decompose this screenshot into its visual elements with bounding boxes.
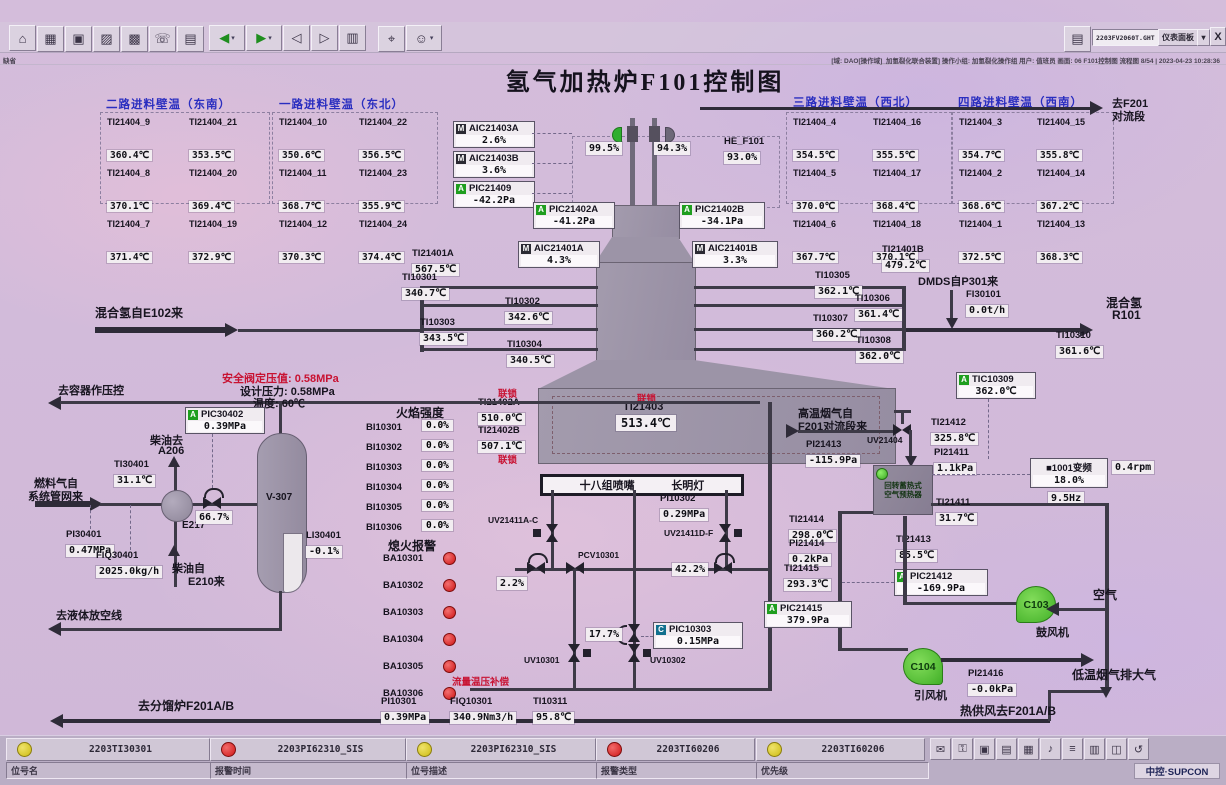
controller-AIC21401A[interactable]: MAIC21401A4.3% — [518, 241, 600, 268]
wall-value-TI21404_22[interactable]: 356.5℃ — [359, 150, 404, 161]
readout-TI10306: TI10306361.4℃ — [855, 293, 902, 322]
interlock-label: 联锁 — [498, 452, 517, 466]
controller-tag-AIC21401B: AIC21401B — [708, 243, 758, 254]
label-burners: 十八组喷嘴 — [580, 477, 635, 493]
fuelgas-control-valve[interactable] — [203, 497, 221, 509]
wall-temp-cell: TI21404_21353.5℃ — [185, 116, 267, 164]
v307-level-glass — [284, 534, 302, 592]
readout-TI10307: TI10307360.2℃ — [813, 313, 860, 342]
damper-b-body[interactable] — [649, 126, 660, 142]
flame-tag-BI10306: BI10306 — [366, 522, 402, 533]
burner-fuel-valve-a[interactable] — [527, 562, 545, 574]
wall-group-1-title: 一路进料壁温（东北） — [279, 96, 404, 112]
controller-PIC21402B[interactable]: APIC21402B-34.1Pa — [679, 202, 765, 229]
search-button[interactable]: ⌖ — [378, 26, 405, 52]
readout-value-TI10301[interactable]: 340.7℃ — [402, 288, 449, 300]
wall-tag-TI21404_16: TI21404_16 — [873, 117, 945, 127]
flame-value-BI10304[interactable]: 0.0% — [422, 480, 453, 491]
controller-AIC21403B[interactable]: MAIC21403B3.6% — [453, 151, 535, 178]
controller-AIC21401B[interactable]: MAIC21401B3.3% — [692, 241, 778, 268]
readout-LI30401: LI30401-0.1% — [306, 530, 342, 559]
mode-M-icon: M — [456, 154, 466, 164]
controller-tag-PIC21402A: PIC21402A — [549, 204, 598, 215]
flame-value-BI10305[interactable]: 0.0% — [422, 500, 453, 511]
flameout-alarm-indicator — [443, 579, 456, 592]
wall-value-TI21404_11[interactable]: 368.7℃ — [279, 201, 324, 212]
label-pcv10301: PCV10301 — [578, 550, 619, 560]
readout-TI21412: TI21412325.8℃ — [931, 417, 978, 446]
dropdown-icon: ▾ — [231, 34, 235, 42]
readout-value-LI30401[interactable]: -0.1% — [306, 546, 342, 558]
valve-actuator-icon — [528, 553, 548, 563]
home-button[interactable]: ⌂ — [9, 25, 36, 51]
wall-value-TI21404_5[interactable]: 370.0℃ — [793, 201, 838, 212]
wall-group-2-title: 二路进料壁温（东南） — [106, 96, 231, 112]
flameout-alarm-indicator — [443, 633, 456, 646]
alarm-field-2: 报警时间 — [210, 762, 410, 779]
wall-temp-cell: TI21404_2368.6℃ — [955, 167, 1033, 215]
instrument-panel-button[interactable]: 仪表面板 — [1158, 29, 1198, 46]
phone-button[interactable]: ☏ — [149, 26, 176, 52]
forward-button[interactable]: ▶▾ — [246, 25, 282, 51]
readout-value-TI10302[interactable]: 342.6℃ — [505, 312, 552, 324]
flameout-row: BA10303 — [383, 606, 473, 622]
readout-value-TI10304[interactable]: 340.5℃ — [507, 355, 554, 367]
forward-icon: ▶ — [256, 30, 266, 46]
readout-value-FIQ10301[interactable]: 340.9Nm3/h — [450, 712, 516, 724]
alarm-yellow-indicator — [417, 742, 432, 757]
grid-button[interactable]: ▩ — [121, 26, 148, 52]
label-c103: C103 — [1023, 599, 1048, 611]
book-icon: ▥ — [346, 30, 358, 46]
readout-FIQ10301: FIQ10301340.9Nm3/h — [450, 696, 516, 725]
readout-tag-TI10306: TI10306 — [855, 293, 902, 304]
readout-tag-TI10305: TI10305 — [815, 270, 862, 281]
wall-temp-cell: TI21404_3354.7℃ — [955, 116, 1033, 164]
flame-tag-BI10301: BI10301 — [366, 422, 402, 433]
monitor-icon: ▣ — [72, 31, 84, 47]
label-blower: 鼓风机 — [1036, 624, 1069, 640]
alarm-tag: 2203TI60206 — [622, 744, 754, 755]
controller-tag-PIC21412: PIC21412 — [910, 571, 952, 582]
controller-PIC21402A[interactable]: APIC21402A-41.2Pa — [533, 202, 615, 229]
readout-tag-TI10307: TI10307 — [813, 313, 860, 324]
readout-PI10301: PI103010.39MPa — [381, 696, 429, 725]
alarm-segment[interactable]: 2203TI60206 — [596, 738, 755, 761]
label-preheater-2: 空气预热器 — [884, 490, 922, 499]
flame-value-BI10306[interactable]: 0.0% — [422, 520, 453, 531]
wall-value-TI21404_14[interactable]: 367.2℃ — [1037, 201, 1082, 212]
phone-icon: ☏ — [154, 31, 170, 47]
burner-box: 十八组喷嘴 长明灯 — [540, 474, 744, 496]
flameout-tag-BA10301: BA10301 — [383, 553, 423, 564]
controller-value-PIC21415[interactable]: 379.9Pa — [767, 615, 849, 626]
alarm-field-5: 优先级 — [756, 762, 929, 779]
pcv10301-valve[interactable] — [566, 562, 584, 574]
wall-value-TI21404_17[interactable]: 368.4℃ — [873, 201, 918, 212]
flameout-row: BA10304 — [383, 633, 473, 649]
uv21411ac-valve[interactable] — [546, 524, 558, 542]
vfd-rpm[interactable]: 0.4rpm — [1112, 461, 1154, 474]
readout-TI10301: TI10301340.7℃ — [402, 272, 449, 301]
wall-value-TI21404_24[interactable]: 374.4℃ — [359, 252, 404, 263]
vfd-percent: 18.0% — [1033, 475, 1105, 486]
controller-PIC21409[interactable]: APIC21409-42.2Pa — [453, 181, 535, 208]
wall-value-TI21404_4[interactable]: 354.5℃ — [793, 150, 838, 161]
readout-TI10310: TI10310361.6℃ — [1056, 330, 1103, 359]
alarm-tag: 2203PI62310_SIS — [432, 744, 595, 755]
readout-value-PI21416[interactable]: -0.0kPa — [968, 684, 1016, 696]
furnace-transition — [612, 205, 680, 239]
wall-temp-cell: TI21404_17368.4℃ — [869, 167, 949, 215]
wall-tag-TI21404_4: TI21404_4 — [793, 117, 865, 127]
pilot-valve-output[interactable]: 17.7% — [586, 628, 622, 641]
pilot-control-valve[interactable] — [628, 624, 640, 642]
alarm-field-1: 位号名 — [6, 762, 214, 779]
close-button[interactable]: X — [1210, 27, 1226, 46]
wall-value-TI21404_23[interactable]: 355.9℃ — [359, 201, 404, 212]
wall-tag-TI21404_8: TI21404_8 — [107, 168, 181, 178]
readout-HE_F101: HE_F10193.0% — [724, 136, 764, 165]
wall-value-TI21404_13[interactable]: 368.3℃ — [1037, 252, 1082, 263]
wall-tag-TI21404_10: TI21404_10 — [279, 117, 351, 127]
readout-PI21411: PI214111.1kPa — [934, 447, 976, 476]
wall-value-TI21404_9[interactable]: 360.4℃ — [107, 150, 152, 161]
readout-tag-TI21411: TI21411 — [936, 497, 977, 508]
readout-tag-TI21414: TI21414 — [789, 514, 836, 525]
printer2-button[interactable]: ▤ — [996, 738, 1017, 760]
wall-value-TI21404_20[interactable]: 369.4℃ — [189, 201, 234, 212]
dropdown-icon: ▾ — [268, 34, 272, 42]
wall-value-TI21404_10[interactable]: 350.6℃ — [279, 150, 324, 161]
readout-value-TI10306[interactable]: 361.4℃ — [855, 309, 902, 321]
document-button[interactable]: ▤ — [177, 26, 204, 52]
alarm-segment[interactable]: 2203TI60206 — [756, 738, 925, 761]
readout-tag-TI10303: TI10303 — [420, 317, 467, 328]
wall-temp-cell: TI21404_11368.7℃ — [275, 167, 355, 215]
controller-tag-PIC30402: PIC30402 — [201, 409, 243, 420]
fuelgas-valve-output[interactable]: 66.7% — [196, 511, 232, 524]
wall-tag-TI21404_23: TI21404_23 — [359, 168, 431, 178]
alarm-bell-button[interactable]: ♪ — [1040, 738, 1061, 760]
wall-temp-table: TI21404_4354.5℃TI21404_16355.5℃TI21404_5… — [786, 112, 952, 204]
readout-tag-TI21402B: TI21402B — [478, 425, 525, 436]
wall-tag-TI21404_3: TI21404_3 — [959, 117, 1029, 127]
readout-tag-TI10311: TI10311 — [533, 696, 574, 707]
label-uv10301: UV10301 — [524, 655, 559, 665]
c104-fan[interactable]: C104 — [903, 648, 943, 685]
list-button[interactable]: ≡ — [1062, 738, 1083, 760]
label-low-flue: 低温烟气排大气 — [1072, 666, 1156, 683]
wall-tag-TI21404_12: TI21404_12 — [279, 219, 351, 229]
alarm-tag: 2203TI60206 — [782, 744, 924, 755]
vfd-1001[interactable]: ■1001变频 18.0% — [1030, 458, 1108, 488]
controller-PIC21412[interactable]: APIC21412-169.9Pa — [894, 569, 988, 596]
furnace-column — [596, 262, 696, 363]
controller-value-AIC21401A[interactable]: 4.3% — [521, 255, 597, 266]
wall-temp-cell: TI21404_10350.6℃ — [275, 116, 355, 164]
readout-value-TI21401B[interactable]: 479.2℃ — [882, 260, 929, 272]
wall-value-TI21404_21[interactable]: 353.5℃ — [189, 150, 234, 161]
readout-FI30101: FI301010.0t/h — [966, 289, 1008, 318]
readout-value-TI10307[interactable]: 360.2℃ — [813, 329, 860, 341]
alarm-red-indicator — [607, 742, 622, 757]
damper-b-output[interactable]: 94.3% — [654, 142, 690, 155]
page-next-button[interactable]: ▷ — [311, 25, 338, 51]
readout-value-TI10311[interactable]: 95.8℃ — [533, 712, 574, 724]
flame-tag-BI10303: BI10303 — [366, 462, 402, 473]
flameout-row: BA10302 — [383, 579, 473, 595]
controller-value-PIC10303[interactable]: 0.15MPa — [656, 636, 740, 647]
controller-value-PIC21402B[interactable]: -34.1Pa — [682, 216, 762, 227]
controller-value-TIC10309[interactable]: 362.0℃ — [959, 386, 1033, 397]
controller-PIC30402[interactable]: APIC304020.39MPa — [185, 407, 265, 434]
controller-AIC21403A[interactable]: MAIC21403A2.6% — [453, 121, 535, 148]
readout-FIQ30401: FIQ304012025.0kg/h — [96, 550, 162, 579]
wall-temp-cell: TI21404_9360.4℃ — [103, 116, 185, 164]
toolbar: ⌂▦▣▨▩☏▤ ◀▾▶▾◁▷▥ ⌖☺▾ ▤ 2203FV2060T.GHT 仪表… — [0, 22, 1226, 52]
readout-value-TI10308[interactable]: 362.0℃ — [856, 351, 903, 363]
wall-temp-table: TI21404_9360.4℃TI21404_21353.5℃TI21404_8… — [100, 112, 270, 204]
wall-value-TI21404_12[interactable]: 370.3℃ — [279, 252, 324, 263]
wall-temp-cell: TI21404_19372.9℃ — [185, 218, 267, 266]
wall-value-TI21404_1[interactable]: 372.5℃ — [959, 252, 1004, 263]
readout-value-FI30101[interactable]: 0.0t/h — [966, 305, 1008, 317]
wall-tag-TI21404_13: TI21404_13 — [1037, 219, 1107, 229]
flame-value-BI10303[interactable]: 0.0% — [422, 460, 453, 471]
controller-tag-AIC21403B: AIC21403B — [469, 153, 519, 164]
flameout-tag-BA10303: BA10303 — [383, 607, 423, 618]
lock-button[interactable]: ⚿ — [952, 738, 973, 760]
readout-value-TI30401[interactable]: 31.1℃ — [114, 475, 155, 487]
wall-tag-TI21404_19: TI21404_19 — [189, 219, 263, 229]
label-uv21411ac: UV21411A-C — [488, 515, 538, 525]
controller-PIC10303[interactable]: CPIC103030.15MPa — [653, 622, 743, 649]
controller-PIC21415[interactable]: APIC21415379.9Pa — [764, 601, 852, 628]
controller-tag-PIC21409: PIC21409 — [469, 183, 511, 194]
wall-tag-TI21404_6: TI21404_6 — [793, 219, 865, 229]
readout-TI21415: TI21415293.3℃ — [784, 563, 831, 592]
label-air: 空气 — [1093, 586, 1117, 603]
flame-row: BI103010.0% — [366, 420, 476, 436]
dcs-screen: ⌂▦▣▨▩☏▤ ◀▾▶▾◁▷▥ ⌖☺▾ ▤ 2203FV2060T.GHT 仪表… — [0, 0, 1226, 785]
alarm-segment[interactable]: 2203PI62310_SIS — [406, 738, 596, 761]
window-button[interactable]: ◫ — [1106, 738, 1127, 760]
mode-M-icon: M — [695, 244, 705, 254]
flameout-alarm-indicator — [443, 552, 456, 565]
monitor-button[interactable]: ▣ — [65, 26, 92, 52]
table-icon: ▦ — [44, 31, 56, 47]
flame-row: BI103060.0% — [366, 520, 476, 536]
uv10302-valve[interactable] — [628, 644, 640, 662]
alarm-yellow-indicator — [17, 742, 32, 757]
controller-tag-AIC21403A: AIC21403A — [469, 123, 519, 134]
label-to-vessel: 去容器作压控 — [58, 382, 124, 398]
calendar-button[interactable]: ▦ — [1018, 738, 1039, 760]
screen-button[interactable]: ▣ — [974, 738, 995, 760]
panel-dropdown-button[interactable]: ▾ — [1197, 29, 1210, 46]
wall-value-TI21404_6[interactable]: 367.7℃ — [793, 252, 838, 263]
readout-value-TI21402A[interactable]: 510.0℃ — [478, 413, 525, 425]
page-prev-button[interactable]: ◁ — [283, 25, 310, 51]
mouse-button[interactable]: ✉ — [930, 738, 951, 760]
mode-A-icon: A — [188, 410, 198, 420]
ti21403-value[interactable]: 513.4℃ — [616, 415, 676, 431]
controller-value-PIC21402A[interactable]: -41.2Pa — [536, 216, 612, 227]
document-combobox[interactable]: 2203FV2060T.GHT — [1092, 29, 1164, 46]
wall-value-TI21404_8[interactable]: 370.1℃ — [107, 201, 152, 212]
wall-temp-table: TI21404_10350.6℃TI21404_22356.5℃TI21404_… — [272, 112, 438, 204]
wall-tag-TI21404_1: TI21404_1 — [959, 219, 1029, 229]
mode-A-icon: A — [682, 205, 692, 215]
mode-A-icon: A — [536, 205, 546, 215]
vfd-name: ■1001变频 — [1046, 460, 1092, 474]
readout-value-TI10310[interactable]: 361.6℃ — [1056, 346, 1103, 358]
damper-a-output[interactable]: 99.5% — [586, 142, 622, 155]
flame-tag-BI10304: BI10304 — [366, 482, 402, 493]
flameout-tag-BA10305: BA10305 — [383, 661, 423, 672]
label-flow-comp: 流量温压补偿 — [452, 674, 509, 688]
alarm-red-indicator — [221, 742, 236, 757]
wall-temp-cell: TI21404_20369.4℃ — [185, 167, 267, 215]
flame-row: BI103040.0% — [366, 480, 476, 496]
search-icon: ⌖ — [388, 31, 395, 47]
wall-value-TI21404_19[interactable]: 372.9℃ — [189, 252, 234, 263]
uv21411df-valve[interactable] — [719, 524, 731, 542]
wall-temp-table: TI21404_3354.7℃TI21404_15355.8℃TI21404_2… — [952, 112, 1114, 204]
wall-value-TI21404_16[interactable]: 355.5℃ — [873, 150, 918, 161]
mode-A-icon: A — [959, 375, 969, 385]
flame-tag-BI10302: BI10302 — [366, 442, 402, 453]
readout-value-TI21411[interactable]: 31.7℃ — [936, 513, 977, 525]
readout-tag-TI21401A: TI21401A — [412, 248, 459, 259]
damper-a-body[interactable] — [627, 126, 638, 142]
flameout-tag-BA10304: BA10304 — [383, 634, 423, 645]
controller-tag-PIC21415: PIC21415 — [780, 603, 822, 614]
report-button[interactable]: ▥ — [1084, 738, 1105, 760]
wall-value-TI21404_15[interactable]: 355.8℃ — [1037, 150, 1082, 161]
controller-value-PIC21409[interactable]: -42.2Pa — [456, 195, 532, 206]
readout-value-HE_F101[interactable]: 93.0% — [724, 152, 760, 164]
flame-row: BI103050.0% — [366, 500, 476, 516]
grid-icon: ▩ — [128, 31, 140, 47]
readout-TI10308: TI10308362.0℃ — [856, 335, 903, 364]
burner-valve-a-output[interactable]: 2.2% — [497, 577, 527, 590]
wall-temp-cell: TI21404_13368.3℃ — [1033, 218, 1111, 266]
user-button[interactable]: ☺▾ — [406, 25, 442, 51]
label-uv10302: UV10302 — [650, 655, 685, 665]
readout-value-PI21413[interactable]: -115.9Pa — [806, 455, 860, 467]
readout-tag-PI21413: PI21413 — [806, 439, 860, 450]
trend-button[interactable]: ▨ — [93, 26, 120, 52]
pipe-to-f201 — [700, 107, 1092, 110]
wall-temp-cell: TI21404_8370.1℃ — [103, 167, 185, 215]
page-prev-icon: ◁ — [292, 30, 302, 46]
uv10301-valve[interactable] — [568, 644, 580, 662]
wall-tag-TI21404_20: TI21404_20 — [189, 168, 263, 178]
label-preheater-1: 回转蓄热式 — [884, 481, 922, 490]
flame-value-BI10302[interactable]: 0.0% — [422, 440, 453, 451]
readout-value-TI10303[interactable]: 343.5℃ — [420, 333, 467, 345]
help-button[interactable]: ↺ — [1128, 738, 1149, 760]
readout-PI10302: PI103020.29MPa — [660, 493, 708, 522]
wall-value-TI21404_3[interactable]: 354.7℃ — [959, 150, 1004, 161]
readout-tag-TI10308: TI10308 — [856, 335, 903, 346]
uv21411df-actuator-icon — [734, 529, 742, 537]
mode-A-icon: A — [767, 604, 777, 614]
wall-tag-TI21404_24: TI21404_24 — [359, 219, 431, 229]
back-button[interactable]: ◀▾ — [209, 25, 245, 51]
readout-value-TI21415[interactable]: 293.3℃ — [784, 579, 831, 591]
book-button[interactable]: ▥ — [339, 25, 366, 51]
controller-value-PIC21412[interactable]: -169.9Pa — [897, 583, 985, 594]
alarm-segment[interactable]: 2203PI62310_SIS — [210, 738, 406, 761]
readout-tag-TI10310: TI10310 — [1056, 330, 1103, 341]
readout-tag-TI21401B: TI21401B — [882, 244, 929, 255]
wall-tag-TI21404_7: TI21404_7 — [107, 219, 181, 229]
back-icon: ◀ — [219, 30, 229, 46]
readout-TI21402B: TI21402B507.1℃ — [478, 425, 525, 454]
flame-tag-BI10305: BI10305 — [366, 502, 402, 513]
print-button[interactable]: ▤ — [1064, 26, 1091, 52]
readout-value-PI10301[interactable]: 0.39MPa — [381, 712, 429, 724]
readout-value-PI10302[interactable]: 0.29MPa — [660, 509, 708, 521]
label-pilot: 长明灯 — [671, 477, 704, 493]
table-button[interactable]: ▦ — [37, 26, 64, 52]
trend-icon: ▨ — [100, 31, 112, 47]
furnace-arch-trapezoid — [538, 360, 894, 389]
wall-tag-TI21404_18: TI21404_18 — [873, 219, 945, 229]
mode-M-icon: M — [521, 244, 531, 254]
wall-temp-cell: TI21404_12370.3℃ — [275, 218, 355, 266]
wall-temp-cell: TI21404_1372.5℃ — [955, 218, 1033, 266]
wall-temp-cell: TI21404_14367.2℃ — [1033, 167, 1111, 215]
wall-tag-TI21404_14: TI21404_14 — [1037, 168, 1107, 178]
wall-value-TI21404_2[interactable]: 368.6℃ — [959, 201, 1004, 212]
controller-value-AIC21401B[interactable]: 3.3% — [695, 255, 775, 266]
e217-exchanger[interactable] — [161, 490, 193, 522]
wall-temp-cell: TI21404_4354.5℃ — [789, 116, 869, 164]
controller-TIC10309[interactable]: ATIC10309362.0℃ — [956, 372, 1036, 399]
alarm-tag: 2203TI30301 — [32, 744, 209, 755]
readout-PI21416: PI21416-0.0kPa — [968, 668, 1016, 697]
wall-value-TI21404_7[interactable]: 371.4℃ — [107, 252, 152, 263]
readout-tag-TI10302: TI10302 — [505, 296, 552, 307]
readout-value-FIQ30401[interactable]: 2025.0kg/h — [96, 566, 162, 578]
preheater-run-indicator — [876, 468, 888, 480]
mode-M-icon: M — [456, 124, 466, 134]
wall-temp-cell: TI21404_5370.0℃ — [789, 167, 869, 215]
label-uv21404: UV21404 — [867, 435, 902, 445]
label-e210: E210来 — [188, 573, 225, 589]
label-induced-fan: 引风机 — [914, 687, 947, 703]
readout-value-TI21412[interactable]: 325.8℃ — [931, 433, 978, 445]
wall-tag-TI21404_15: TI21404_15 — [1037, 117, 1107, 127]
alarm-segment[interactable]: 2203TI30301 — [6, 738, 210, 761]
furnace-neck-trapezoid — [595, 237, 695, 263]
flame-value-BI10301[interactable]: 0.0% — [422, 420, 453, 431]
burner-valve-b-output[interactable]: 42.2% — [672, 563, 708, 576]
controller-tag-PIC21402B: PIC21402B — [695, 204, 744, 215]
alarm-tag: 2203PI62310_SIS — [236, 744, 405, 755]
controller-value-AIC21403B[interactable]: 3.6% — [456, 165, 532, 176]
mode-A-icon: A — [456, 184, 466, 194]
controller-value-PIC30402[interactable]: 0.39MPa — [188, 421, 262, 432]
controller-value-AIC21403A[interactable]: 2.6% — [456, 135, 532, 146]
burner-fuel-valve-b[interactable] — [714, 562, 732, 574]
readout-tag-FI30101: FI30101 — [966, 289, 1008, 300]
readout-tag-PI21416: PI21416 — [968, 668, 1016, 679]
